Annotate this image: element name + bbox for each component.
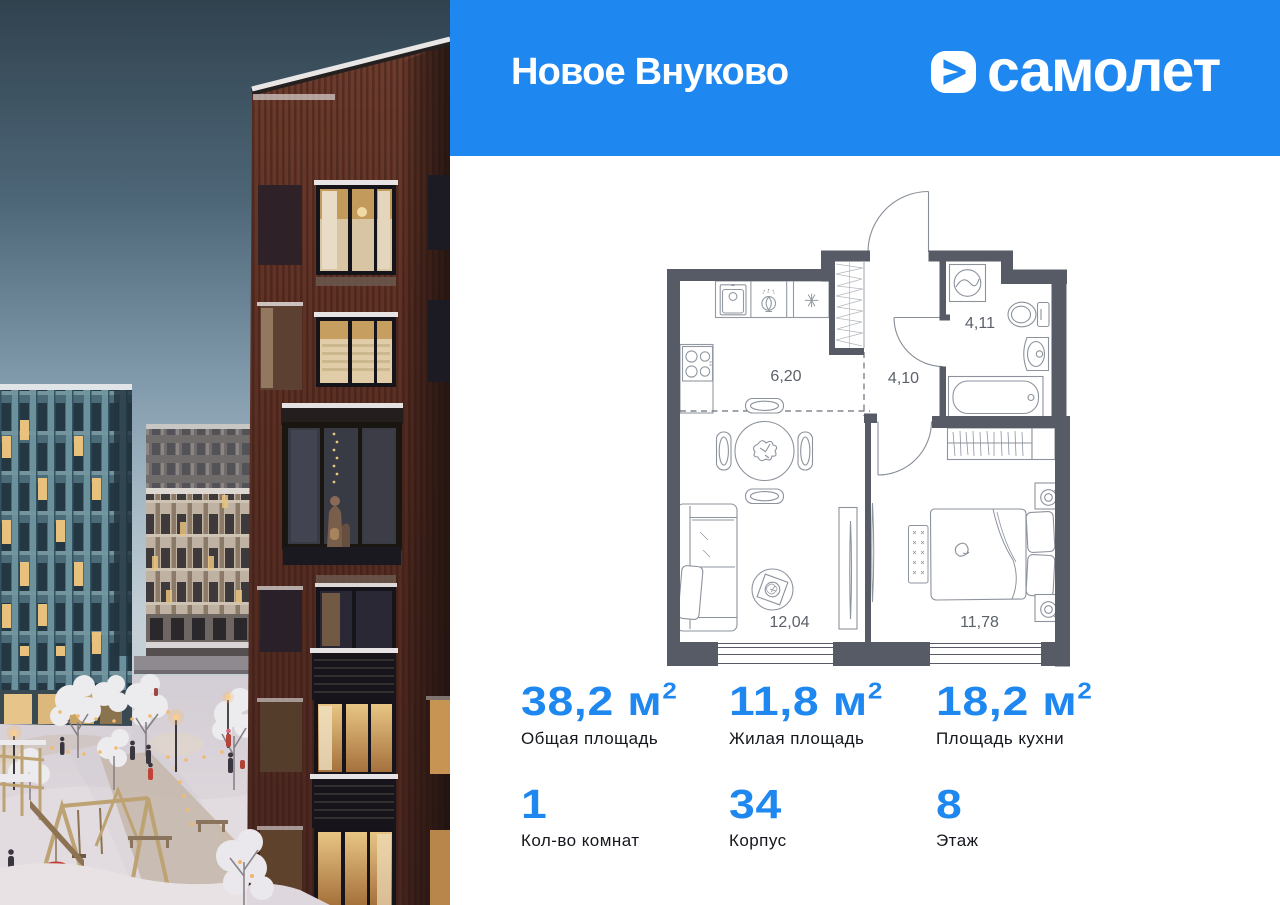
- svg-text:12,04: 12,04: [769, 614, 809, 631]
- svg-text:11,78: 11,78: [960, 614, 999, 631]
- svg-text:4,10: 4,10: [888, 370, 919, 387]
- svg-text:4,11: 4,11: [965, 315, 995, 332]
- svg-text:6,20: 6,20: [770, 368, 801, 385]
- svg-text:самолет: самолет: [987, 49, 1220, 95]
